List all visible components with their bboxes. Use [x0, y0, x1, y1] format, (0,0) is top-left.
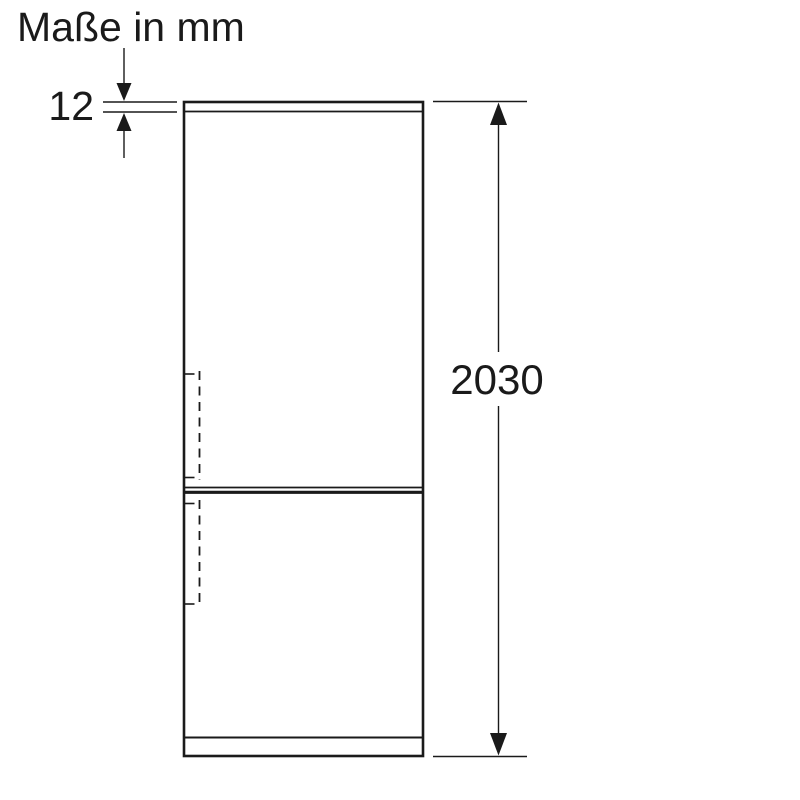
appliance-outline-group — [184, 102, 423, 756]
dim-overall-height-label: 2030 — [450, 356, 543, 403]
dimension-diagram-page: Maße in mm 12 — [0, 0, 800, 800]
dim-top-thickness-label: 12 — [48, 83, 94, 129]
fridge-body-outline — [184, 102, 423, 756]
dim-overall-height-group — [433, 102, 527, 757]
dim-overall-height-arrow-up-icon — [490, 103, 507, 126]
dim-top-thickness-arrow-down-icon — [117, 83, 132, 101]
dim-top-thickness-arrow-up-icon — [117, 113, 132, 131]
upper-door-swing-group — [184, 371, 200, 480]
units-label: Maße in mm — [17, 4, 245, 50]
dim-overall-height-arrow-down-icon — [490, 733, 507, 756]
lower-door-swing-group — [184, 500, 200, 607]
fridge-dimension-diagram: Maße in mm 12 — [0, 0, 800, 800]
dim-top-thickness-group — [103, 48, 177, 158]
